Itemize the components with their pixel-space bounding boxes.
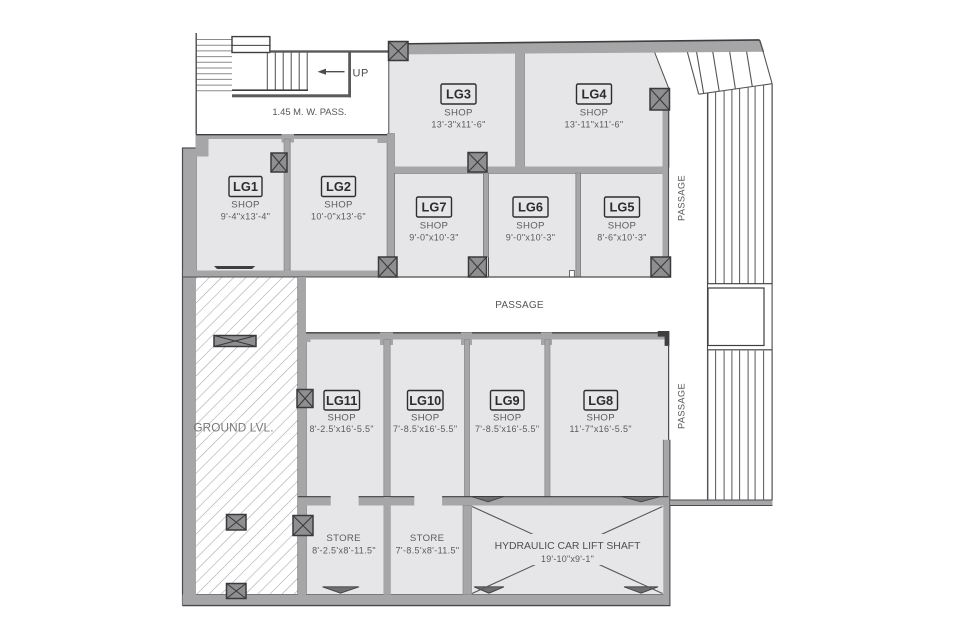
svg-text:LG3: LG3: [446, 87, 471, 102]
svg-text:SHOP: SHOP: [493, 413, 521, 424]
svg-text:PASSAGE: PASSAGE: [677, 383, 687, 429]
svg-text:SHOP: SHOP: [328, 413, 356, 424]
svg-text:LG4: LG4: [582, 87, 608, 102]
svg-text:PASSAGE: PASSAGE: [677, 175, 687, 221]
svg-text:STORE: STORE: [410, 533, 444, 544]
svg-text:LG1: LG1: [233, 179, 258, 194]
svg-text:LG8: LG8: [588, 393, 613, 408]
svg-text:LG7: LG7: [422, 200, 447, 215]
svg-text:13'-11"x11'-6": 13'-11"x11'-6": [565, 120, 624, 130]
svg-text:SHOP: SHOP: [420, 221, 448, 232]
svg-text:9'-0"x10'-3": 9'-0"x10'-3": [506, 233, 556, 243]
svg-text:HYDRAULIC CAR LIFT SHAFT: HYDRAULIC CAR LIFT SHAFT: [495, 541, 642, 552]
svg-text:8'-2.5'x16'-5.5": 8'-2.5'x16'-5.5": [309, 424, 373, 434]
svg-text:13'-3"x11'-6": 13'-3"x11'-6": [431, 120, 485, 130]
svg-text:9'-4"x13'-4": 9'-4"x13'-4": [221, 212, 271, 222]
svg-text:10'-0"x13'-6": 10'-0"x13'-6": [311, 212, 366, 222]
svg-text:1.45 M. W. PASS.: 1.45 M. W. PASS.: [272, 106, 346, 117]
svg-text:19'-10"x9'-1": 19'-10"x9'-1": [541, 554, 594, 564]
svg-text:7'-8.5'x16'-5.5": 7'-8.5'x16'-5.5": [393, 424, 457, 434]
svg-text:SHOP: SHOP: [587, 413, 615, 424]
svg-text:7'-8.5'x8'-11.5": 7'-8.5'x8'-11.5": [396, 546, 460, 556]
svg-text:SHOP: SHOP: [516, 221, 544, 232]
svg-text:LG11: LG11: [326, 393, 357, 408]
svg-text:SHOP: SHOP: [231, 200, 259, 211]
svg-text:GROUND LVL.: GROUND LVL.: [193, 421, 273, 435]
svg-text:8'-2.5'x8'-11.5": 8'-2.5'x8'-11.5": [312, 546, 376, 556]
svg-text:SHOP: SHOP: [580, 108, 608, 119]
svg-text:7'-8.5'x16'-5.5": 7'-8.5'x16'-5.5": [475, 424, 539, 434]
svg-text:LG2: LG2: [326, 179, 351, 194]
svg-text:STORE: STORE: [326, 533, 360, 544]
svg-text:LG9: LG9: [495, 393, 520, 408]
svg-text:LG5: LG5: [610, 200, 635, 215]
svg-text:9'-0"x10'-3": 9'-0"x10'-3": [409, 233, 459, 243]
svg-text:LG10: LG10: [409, 393, 441, 408]
svg-text:11'-7"x16'-5.5": 11'-7"x16'-5.5": [569, 424, 631, 434]
svg-text:PASSAGE: PASSAGE: [495, 300, 544, 311]
svg-text:SHOP: SHOP: [608, 221, 636, 232]
svg-text:SHOP: SHOP: [444, 108, 472, 119]
svg-text:SHOP: SHOP: [411, 413, 439, 424]
svg-text:UP: UP: [353, 68, 369, 80]
svg-text:LG6: LG6: [518, 200, 543, 215]
svg-text:SHOP: SHOP: [324, 200, 352, 211]
svg-text:8'-6"x10'-3": 8'-6"x10'-3": [597, 233, 647, 243]
